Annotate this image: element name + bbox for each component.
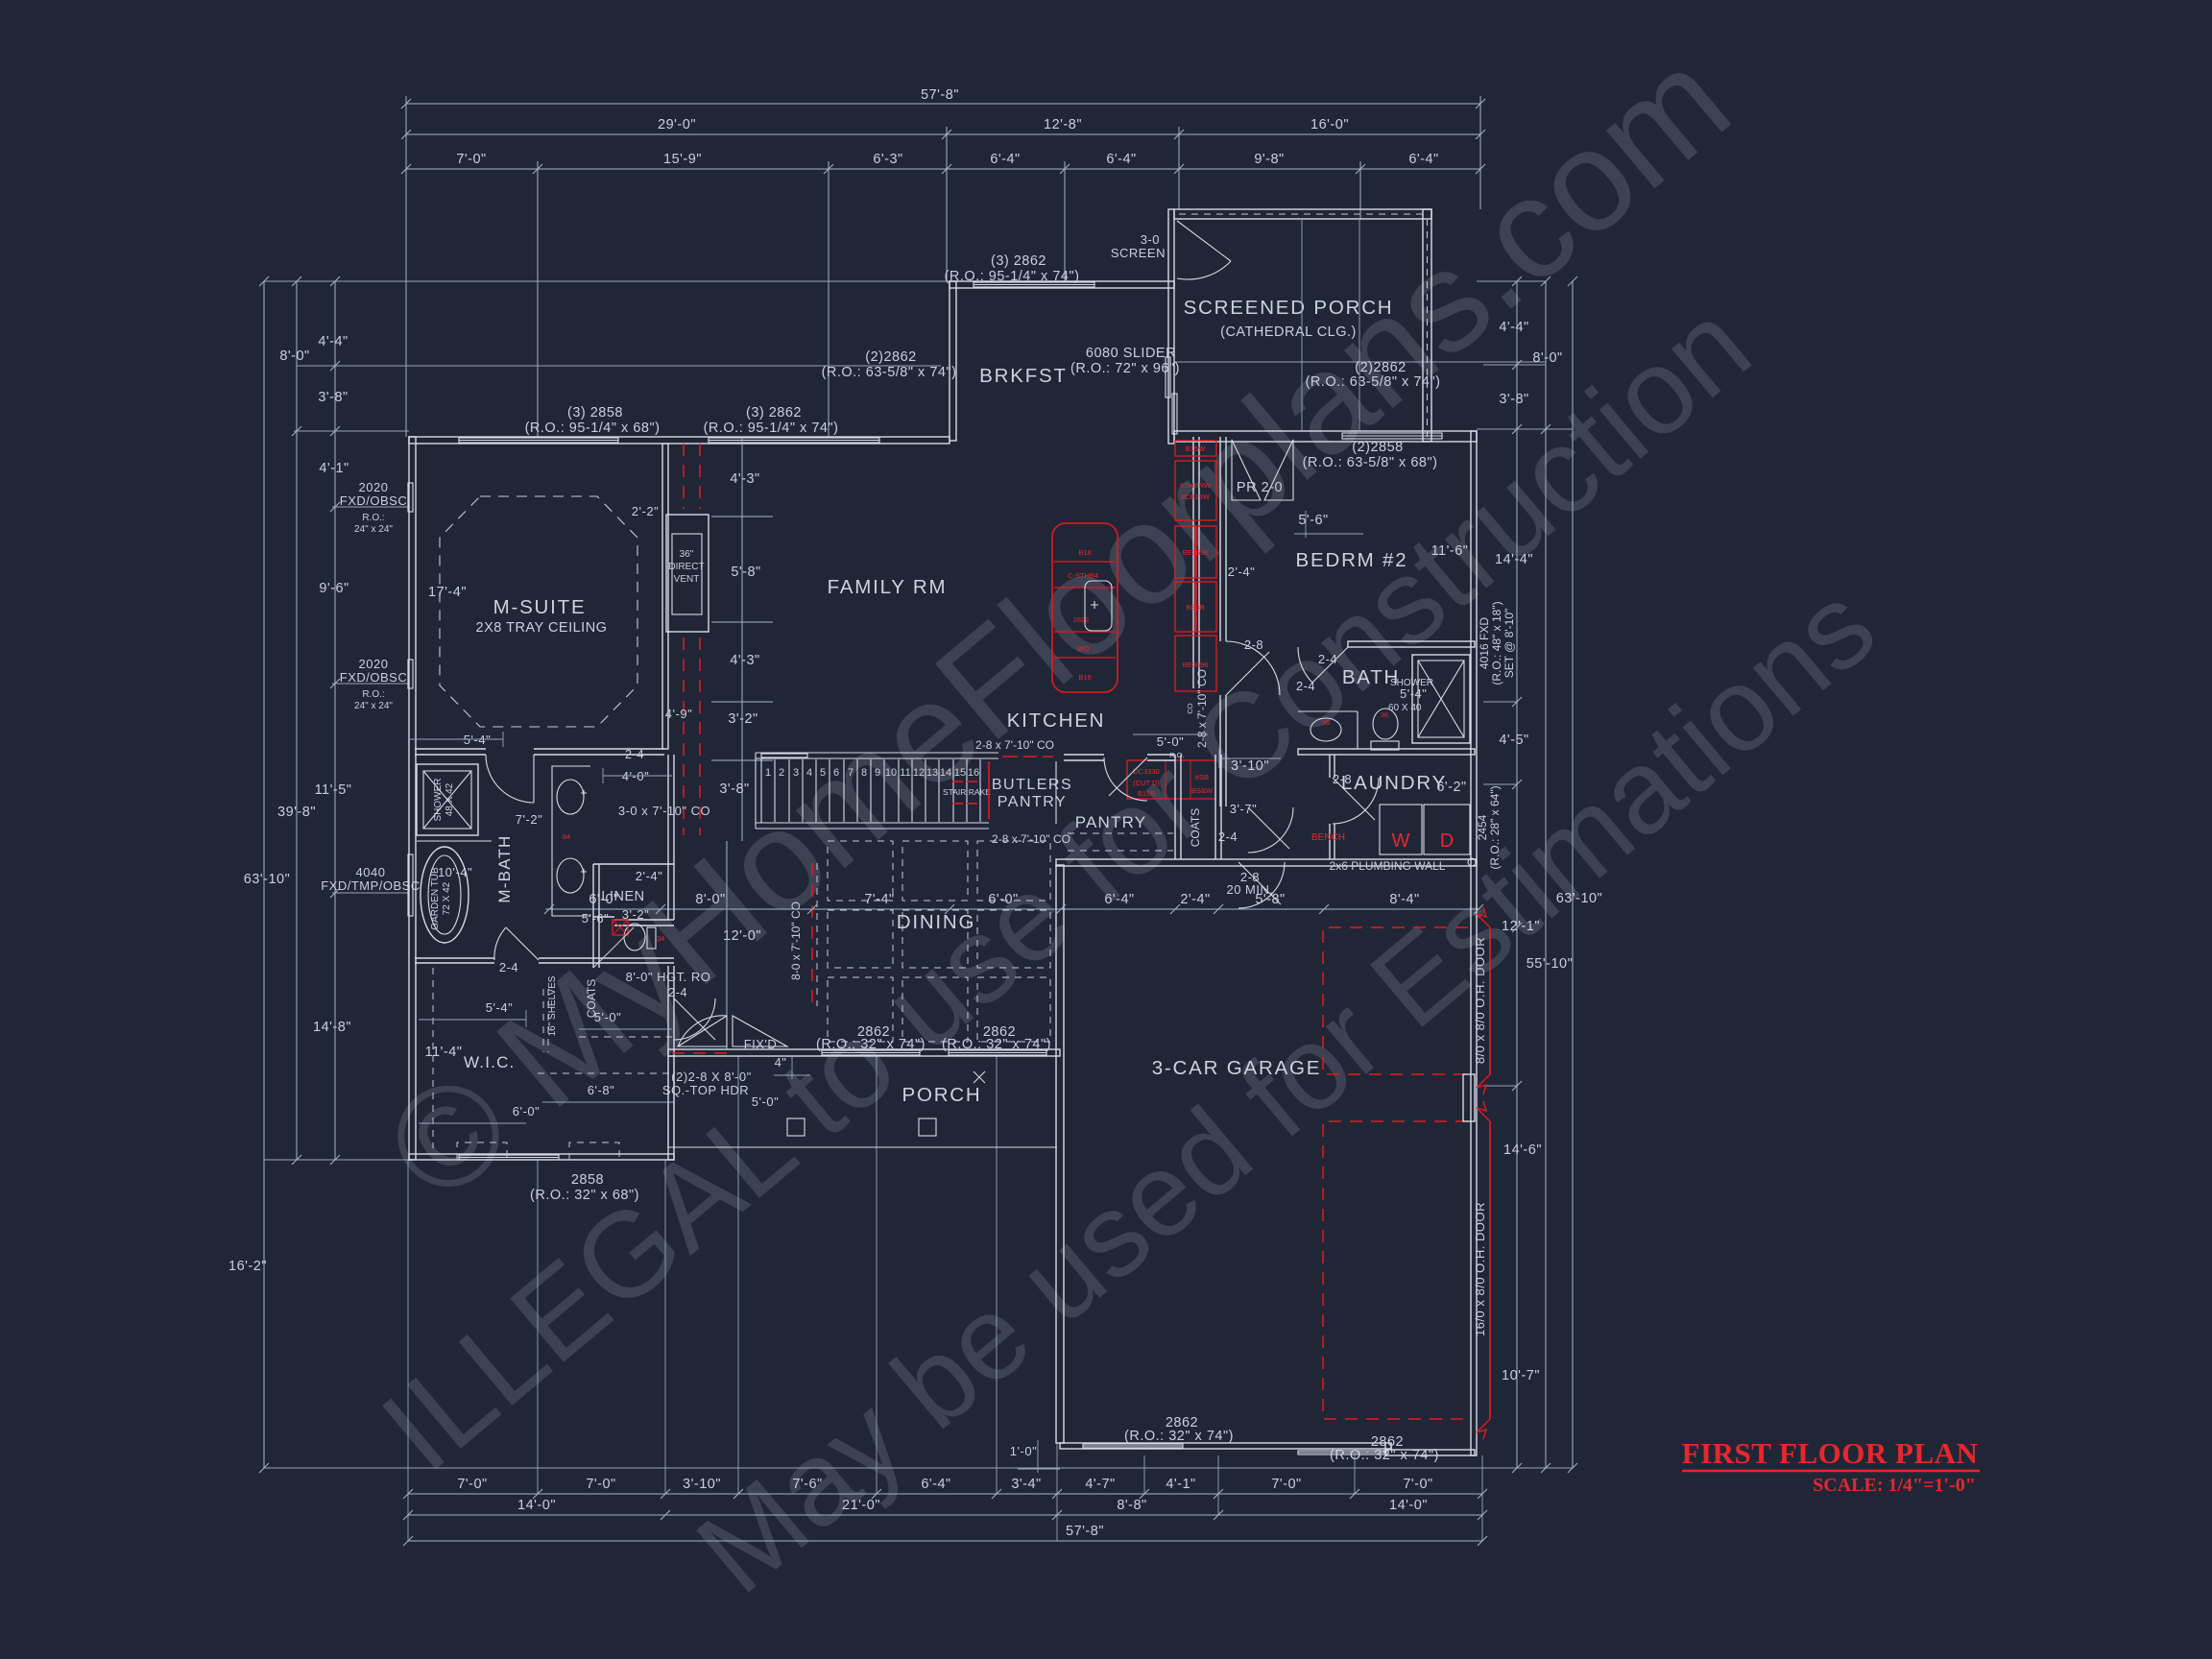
- svg-text:2-8 x 7'-10" CO: 2-8 x 7'-10" CO: [975, 738, 1054, 752]
- svg-text:14'-4": 14'-4": [1495, 552, 1533, 567]
- svg-text:3'-8": 3'-8": [719, 781, 749, 797]
- svg-text:2020: 2020: [359, 480, 389, 494]
- svg-text:BUTLERS: BUTLERS: [992, 777, 1072, 793]
- svg-text:(R.O.: 95-1/4" x 74"): (R.O.: 95-1/4" x 74"): [704, 421, 839, 436]
- svg-text:16'-0": 16'-0": [1310, 117, 1349, 132]
- svg-text:(R.O.: 63-5/8" x 74"): (R.O.: 63-5/8" x 74"): [822, 365, 957, 380]
- svg-text:8'-4": 8'-4": [1389, 892, 1419, 907]
- svg-text:2822: 2822: [1073, 615, 1090, 624]
- svg-text:5'-6": 5'-6": [1298, 513, 1328, 528]
- svg-text:2-8: 2-8: [1244, 637, 1263, 652]
- svg-text:12'-0": 12'-0": [723, 928, 761, 944]
- svg-text:B18: B18: [1078, 548, 1091, 557]
- svg-text:2-4: 2-4: [625, 747, 644, 761]
- svg-text:M-BATH: M-BATH: [495, 834, 514, 902]
- svg-text:2'-4": 2'-4": [636, 869, 662, 883]
- svg-text:BRKFST: BRKFST: [979, 365, 1068, 387]
- svg-text:(R.O.: 32" x 74"): (R.O.: 32" x 74"): [1330, 1448, 1439, 1463]
- svg-text:SET @ 8'-10": SET @ 8'-10": [1503, 609, 1516, 679]
- svg-text:3'-10": 3'-10": [683, 1477, 721, 1492]
- svg-text:7'-6": 7'-6": [792, 1477, 822, 1492]
- svg-text:4'-7": 4'-7": [1085, 1477, 1115, 1492]
- svg-text:11'-5": 11'-5": [315, 782, 352, 798]
- svg-text:3-0: 3-0: [1141, 232, 1160, 247]
- svg-text:FIRST FLOOR PLAN: FIRST FLOOR PLAN: [1682, 1436, 1979, 1470]
- svg-text:4": 4": [775, 1055, 787, 1070]
- svg-text:4'-5": 4'-5": [1499, 733, 1528, 748]
- svg-text:72 X 42: 72 X 42: [442, 881, 452, 915]
- svg-text:7'-0": 7'-0": [457, 1477, 487, 1492]
- svg-text:SHOWER: SHOWER: [433, 779, 444, 822]
- svg-text:B15W: B15W: [1186, 445, 1206, 453]
- svg-text:5'-4": 5'-4": [486, 1000, 513, 1015]
- svg-text:5'-0": 5'-0": [594, 1010, 621, 1024]
- svg-text:(2)2862: (2)2862: [865, 349, 916, 365]
- svg-text:6'-4": 6'-4": [921, 1477, 950, 1492]
- svg-text:#SHBRW: #SHBRW: [1180, 481, 1212, 490]
- svg-text:(CUT D): (CUT D): [1133, 779, 1160, 787]
- svg-text:2: 2: [779, 767, 784, 779]
- svg-text:2-4: 2-4: [668, 985, 687, 999]
- svg-text:SQ.-TOP HDR: SQ.-TOP HDR: [662, 1083, 749, 1097]
- svg-text:5'-6": 5'-6": [582, 911, 609, 926]
- svg-text:1'-0": 1'-0": [1010, 1444, 1037, 1458]
- svg-text:63'-10": 63'-10": [244, 872, 291, 887]
- svg-text:21'-0": 21'-0": [842, 1498, 880, 1513]
- svg-text:10'-4": 10'-4": [438, 865, 472, 879]
- svg-text:24" x 24": 24" x 24": [354, 524, 393, 535]
- svg-text:48 X 42: 48 X 42: [445, 782, 455, 816]
- svg-text:LINEN: LINEN: [601, 889, 644, 904]
- svg-text:SCALE: 1/4"=1'-0": SCALE: 1/4"=1'-0": [1813, 1475, 1976, 1496]
- svg-text:VENT: VENT: [674, 574, 700, 585]
- svg-text:6'-0": 6'-0": [513, 1104, 540, 1118]
- svg-text:16'-2": 16'-2": [228, 1259, 267, 1274]
- svg-text:8/0 x 8/0 O.H. DOOR: 8/0 x 8/0 O.H. DOOR: [1473, 937, 1487, 1064]
- svg-text:2x6 PLUMBING WALL: 2x6 PLUMBING WALL: [1330, 859, 1446, 873]
- svg-text:3'-10": 3'-10": [1231, 758, 1269, 774]
- svg-text:LAUNDRY: LAUNDRY: [1341, 772, 1447, 794]
- svg-text:(R.O.: 32" x 74"): (R.O.: 32" x 74"): [816, 1037, 926, 1052]
- svg-text:BEDRM #2: BEDRM #2: [1296, 549, 1408, 571]
- svg-text:14'-6": 14'-6": [1503, 1142, 1542, 1158]
- svg-text:SCREEN: SCREEN: [1111, 246, 1166, 260]
- svg-text:2858: 2858: [571, 1172, 604, 1188]
- svg-text:FIX'D: FIX'D: [744, 1037, 778, 1051]
- svg-text:16: 16: [968, 767, 979, 779]
- svg-text:8'-8": 8'-8": [1117, 1498, 1146, 1513]
- svg-text:6'-2": 6'-2": [1436, 780, 1466, 795]
- svg-text:12: 12: [913, 767, 925, 779]
- svg-text:6'-4": 6'-4": [1104, 892, 1134, 907]
- svg-text:(3) 2862: (3) 2862: [746, 405, 802, 421]
- svg-text:#SB: #SB: [1195, 773, 1209, 781]
- svg-text:(2)2862: (2)2862: [1355, 360, 1406, 375]
- svg-text:8-0 x 7'-10" CO: 8-0 x 7'-10" CO: [789, 902, 803, 980]
- svg-text:9'-6": 9'-6": [319, 581, 349, 596]
- svg-text:FAMILY RM: FAMILY RM: [828, 576, 948, 598]
- svg-text:7'-0": 7'-0": [586, 1477, 615, 1492]
- svg-text:(R.O.: 32" x 74"): (R.O.: 32" x 74"): [942, 1037, 1051, 1052]
- svg-text:WO: WO: [1077, 644, 1090, 653]
- svg-text:(R.O.: 63-5/8" x 68"): (R.O.: 63-5/8" x 68"): [1303, 455, 1438, 470]
- svg-text:8'-0": 8'-0": [1532, 350, 1562, 366]
- svg-text:5'-4": 5'-4": [464, 733, 491, 747]
- svg-text:4'-3": 4'-3": [730, 653, 759, 668]
- svg-text:5'-0": 5'-0": [752, 1094, 779, 1109]
- svg-text:4: 4: [806, 767, 812, 779]
- svg-text:(R.O.: 48" x 18"): (R.O.: 48" x 18"): [1490, 601, 1503, 685]
- svg-text:6'-4": 6'-4": [1106, 152, 1136, 167]
- svg-text:11'-6": 11'-6": [1431, 543, 1469, 559]
- svg-text:FXD/OBSC: FXD/OBSC: [340, 493, 407, 508]
- svg-text:C-STHB4: C-STHB4: [1068, 571, 1098, 580]
- svg-text:12'-8": 12'-8": [1044, 117, 1082, 132]
- svg-text:PANTRY: PANTRY: [1075, 813, 1147, 831]
- svg-text:11: 11: [900, 767, 910, 779]
- svg-text:FXD/OBSC: FXD/OBSC: [340, 670, 407, 685]
- svg-text:14'-8": 14'-8": [313, 1020, 351, 1035]
- svg-text:(R.O.: 95-1/4" x 68"): (R.O.: 95-1/4" x 68"): [525, 421, 661, 436]
- svg-text:(R.O.: 95-1/4" x 74"): (R.O.: 95-1/4" x 74"): [945, 269, 1080, 284]
- svg-text:6'-0": 6'-0": [988, 892, 1018, 907]
- svg-text:14'-0": 14'-0": [517, 1498, 556, 1513]
- svg-text:2X8 TRAY CEILING: 2X8 TRAY CEILING: [476, 620, 608, 636]
- svg-text:15: 15: [954, 767, 966, 779]
- svg-text:2'-4": 2'-4": [1228, 565, 1255, 579]
- svg-text:13: 13: [926, 767, 938, 779]
- svg-text:BE3698: BE3698: [1183, 661, 1209, 669]
- svg-text:6'-4": 6'-4": [990, 152, 1020, 167]
- svg-text:9: 9: [875, 767, 880, 779]
- svg-text:W: W: [1392, 830, 1410, 852]
- svg-text:1: 1: [765, 767, 771, 779]
- svg-text:7'-4": 7'-4": [864, 892, 894, 907]
- svg-text:4'-1": 4'-1": [319, 461, 349, 476]
- svg-text:2'-2": 2'-2": [632, 504, 659, 518]
- svg-text:36": 36": [680, 549, 694, 560]
- svg-text:2020: 2020: [359, 657, 389, 671]
- svg-text:7'-2": 7'-2": [516, 812, 542, 827]
- svg-text:PORCH: PORCH: [902, 1084, 981, 1106]
- svg-text:DINING: DINING: [897, 911, 976, 933]
- svg-text:8'-0": 8'-0": [279, 349, 309, 364]
- svg-text:36: 36: [1322, 718, 1330, 727]
- svg-text:BENCH: BENCH: [1311, 832, 1345, 843]
- svg-text:15'-9": 15'-9": [663, 152, 702, 167]
- svg-text:29'-0": 29'-0": [658, 117, 696, 132]
- svg-text:11'-4": 11'-4": [425, 1045, 463, 1060]
- svg-text:6'-4": 6'-4": [1408, 152, 1438, 167]
- svg-text:3-0 x 7'-10" CO: 3-0 x 7'-10" CO: [618, 804, 710, 818]
- svg-text:39'-8": 39'-8": [277, 805, 316, 820]
- svg-text:9'-8": 9'-8": [1254, 152, 1284, 167]
- svg-text:W.I.C.: W.I.C.: [464, 1053, 515, 1071]
- svg-text:4016 FXD: 4016 FXD: [1478, 617, 1491, 669]
- svg-text:M-SUITE: M-SUITE: [493, 596, 587, 618]
- svg-text:8'-0" HGT. RO: 8'-0" HGT. RO: [626, 970, 711, 984]
- svg-text:7'-0": 7'-0": [1403, 1477, 1432, 1492]
- svg-text:57'-8": 57'-8": [921, 87, 959, 103]
- svg-text:B18: B18: [1078, 673, 1091, 682]
- svg-text:(R.O.: 28" x 64"): (R.O.: 28" x 64"): [1488, 785, 1502, 869]
- svg-text:FXD/TMP/OBSC: FXD/TMP/OBSC: [321, 878, 421, 893]
- svg-text:2-8 x 7'-10" CO: 2-8 x 7'-10" CO: [1195, 669, 1209, 748]
- svg-text:7'-0": 7'-0": [456, 152, 486, 167]
- svg-text:3-CAR GARAGE: 3-CAR GARAGE: [1152, 1057, 1322, 1079]
- svg-text:R.O.:: R.O.:: [362, 513, 384, 523]
- svg-text:(2)2-8 X 8'-0": (2)2-8 X 8'-0": [671, 1070, 751, 1084]
- svg-text:6'-3": 6'-3": [873, 152, 902, 167]
- svg-text:20 MIN.: 20 MIN.: [1226, 882, 1273, 897]
- svg-text:16" SHELVES: 16" SHELVES: [547, 975, 558, 1036]
- svg-text:4'-9": 4'-9": [665, 707, 692, 721]
- svg-text:4'-0": 4'-0": [622, 769, 649, 783]
- svg-text:34: 34: [657, 934, 664, 943]
- svg-text:16/0 x 8/0 O.H. DOOR: 16/0 x 8/0 O.H. DOOR: [1473, 1202, 1487, 1336]
- svg-text:24" x 24": 24" x 24": [354, 701, 393, 711]
- svg-text:3'-7": 3'-7": [1230, 802, 1257, 816]
- svg-text:2'-4": 2'-4": [1180, 892, 1210, 907]
- svg-text:3'-8": 3'-8": [318, 390, 348, 405]
- svg-text:5'-0": 5'-0": [1157, 734, 1184, 749]
- svg-text:4'-4": 4'-4": [1499, 320, 1528, 335]
- svg-text:8: 8: [861, 767, 867, 779]
- svg-text:6'-8": 6'-8": [588, 1083, 614, 1097]
- svg-text:KITCHEN: KITCHEN: [1007, 709, 1106, 732]
- svg-text:BE3B: BE3B: [1186, 603, 1204, 612]
- svg-text:B15B: B15B: [1138, 789, 1155, 798]
- svg-text:63'-10": 63'-10": [1556, 891, 1603, 906]
- svg-text:(3) 2862: (3) 2862: [991, 253, 1046, 269]
- svg-text:(R.O.: 72" x 96"): (R.O.: 72" x 96"): [1070, 361, 1180, 376]
- svg-text:R.O.:: R.O.:: [362, 689, 384, 700]
- svg-text:14'-0": 14'-0": [1389, 1498, 1428, 1513]
- svg-text:PR 2-0: PR 2-0: [1237, 480, 1283, 495]
- svg-text:2-4: 2-4: [499, 960, 518, 974]
- svg-text:2-8 x 7'-10" CO: 2-8 x 7'-10" CO: [992, 832, 1070, 846]
- svg-text:2454: 2454: [1476, 814, 1489, 840]
- svg-text:6080 SLIDER: 6080 SLIDER: [1086, 346, 1176, 361]
- svg-text:5'-8": 5'-8": [731, 565, 760, 580]
- svg-text:6: 6: [833, 767, 839, 779]
- svg-text:84: 84: [563, 832, 570, 841]
- svg-text:3'-4": 3'-4": [1011, 1477, 1041, 1492]
- svg-text:3: 3: [793, 767, 799, 779]
- svg-text:(CATHEDRAL CLG.): (CATHEDRAL CLG.): [1220, 325, 1357, 340]
- svg-text:PANTRY: PANTRY: [998, 794, 1067, 810]
- svg-text:8'-0": 8'-0": [695, 892, 725, 907]
- svg-text:(R.O.: 32" x 68"): (R.O.: 32" x 68"): [530, 1188, 639, 1203]
- svg-text:(R.O.: 63-5/8" x 74"): (R.O.: 63-5/8" x 74"): [1306, 374, 1441, 390]
- svg-text:14: 14: [940, 767, 951, 779]
- svg-text:10'-7": 10'-7": [1502, 1368, 1540, 1383]
- svg-text:4'-4": 4'-4": [318, 334, 348, 349]
- svg-text:4'-3": 4'-3": [730, 471, 759, 487]
- svg-text:7'-0": 7'-0": [1271, 1477, 1301, 1492]
- svg-text:(3) 2858: (3) 2858: [567, 405, 623, 421]
- svg-text:4040: 4040: [356, 865, 386, 879]
- svg-text:7: 7: [848, 767, 854, 779]
- svg-text:2-8: 2-8: [1333, 772, 1352, 786]
- svg-text:2-4: 2-4: [1296, 679, 1315, 693]
- svg-text:3'-8": 3'-8": [1499, 392, 1528, 407]
- svg-text:17'-4": 17'-4": [428, 585, 467, 600]
- svg-text:D: D: [1440, 830, 1454, 852]
- svg-text:BS&W: BS&W: [1191, 786, 1214, 795]
- svg-text:#CB15W: #CB15W: [1181, 493, 1211, 501]
- svg-text:5: 5: [820, 767, 826, 779]
- svg-text:CO: CO: [1186, 703, 1194, 713]
- svg-text:12'-1": 12'-1": [1502, 919, 1540, 934]
- svg-text:3'-2": 3'-2": [728, 711, 757, 727]
- svg-text:SCREENED PORCH: SCREENED PORCH: [1184, 297, 1394, 319]
- svg-text:5'-4": 5'-4": [1400, 686, 1427, 701]
- svg-text:10: 10: [885, 767, 897, 779]
- svg-text:COATS: COATS: [1189, 808, 1202, 847]
- svg-text:4'-1": 4'-1": [1166, 1477, 1195, 1492]
- svg-text:2-4: 2-4: [1318, 652, 1337, 666]
- svg-text:36: 36: [1381, 710, 1388, 719]
- svg-text:57'-8": 57'-8": [1066, 1524, 1104, 1539]
- svg-text:55'-10": 55'-10": [1527, 956, 1574, 972]
- svg-text:STAIR RAKE: STAIR RAKE: [943, 787, 991, 797]
- svg-text:BE3698: BE3698: [1183, 548, 1209, 557]
- svg-text:(2)2858: (2)2858: [1352, 440, 1403, 455]
- svg-text:(R.O.: 32" x 74"): (R.O.: 32" x 74"): [1124, 1429, 1234, 1444]
- svg-text:DIRECT: DIRECT: [668, 562, 704, 572]
